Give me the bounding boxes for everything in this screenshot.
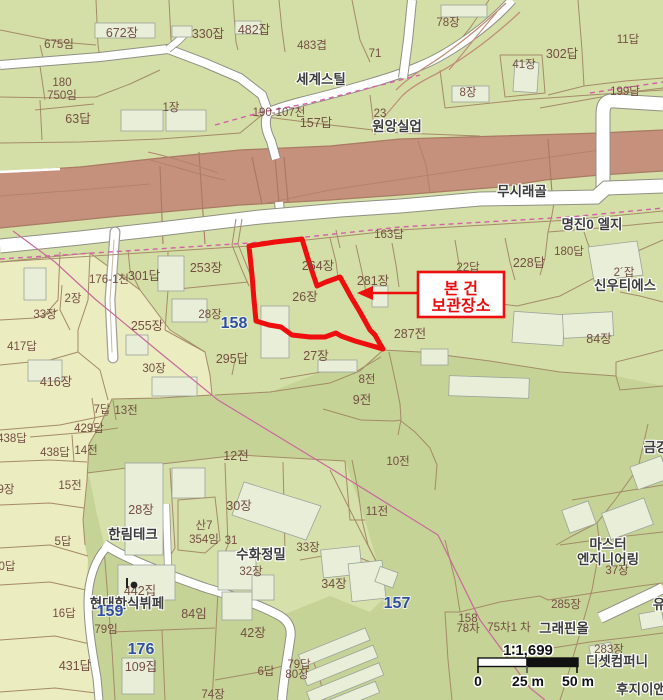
svg-text:12전: 12전 <box>223 449 248 463</box>
svg-text:438답: 438답 <box>0 432 27 445</box>
svg-text:34장: 34장 <box>321 577 347 591</box>
svg-text:30장: 30장 <box>226 499 252 513</box>
svg-text:15전: 15전 <box>58 479 81 492</box>
svg-text:28장: 28장 <box>128 503 154 517</box>
svg-text:109집: 109집 <box>125 660 157 674</box>
svg-text:8전: 8전 <box>359 373 376 386</box>
svg-text:디셋컴퍼니: 디셋컴퍼니 <box>586 653 648 669</box>
svg-text:11전: 11전 <box>366 505 389 518</box>
svg-text:354임: 354임 <box>189 533 219 546</box>
svg-text:보관장소: 보관장소 <box>432 297 491 315</box>
svg-text:176-1천: 176-1천 <box>89 272 129 286</box>
svg-text:157답: 157답 <box>300 116 333 130</box>
svg-text:253장: 253장 <box>190 261 223 275</box>
svg-text:6답: 6답 <box>258 665 275 678</box>
svg-text:27장: 27장 <box>303 349 329 363</box>
svg-text:180답: 180답 <box>554 245 584 258</box>
svg-text:무시래골: 무시래골 <box>497 184 547 199</box>
svg-text:10전: 10전 <box>386 455 409 468</box>
svg-text:26장: 26장 <box>292 290 318 304</box>
svg-text:199답: 199답 <box>610 85 640 98</box>
svg-text:28장: 28장 <box>198 308 222 321</box>
svg-text:1∶1,699: 1∶1,699 <box>503 642 553 659</box>
svg-text:750임: 750임 <box>47 89 77 102</box>
svg-text:본 건: 본 건 <box>444 280 478 298</box>
svg-text:수화정밀: 수화정밀 <box>236 546 286 562</box>
svg-text:438답: 438답 <box>40 446 70 459</box>
svg-text:416장: 416장 <box>40 375 73 389</box>
svg-text:세계스틸: 세계스틸 <box>296 72 346 87</box>
svg-text:295답: 295답 <box>216 352 249 366</box>
svg-text:255장: 255장 <box>131 319 164 333</box>
svg-text:84장: 84장 <box>586 332 612 346</box>
svg-text:672장: 672장 <box>106 26 139 40</box>
svg-text:285장: 285장 <box>551 598 581 611</box>
svg-text:417답: 417답 <box>7 340 37 353</box>
svg-text:11답: 11답 <box>617 33 640 46</box>
svg-text:산7: 산7 <box>196 519 213 532</box>
svg-text:9장: 9장 <box>0 483 15 496</box>
svg-text:7답: 7답 <box>94 403 111 416</box>
svg-text:287전: 287전 <box>394 327 426 341</box>
svg-text:9전: 9전 <box>353 393 371 407</box>
svg-text:2장: 2장 <box>65 292 82 305</box>
svg-text:301답: 301답 <box>128 269 161 283</box>
svg-text:41장: 41장 <box>512 58 536 71</box>
svg-text:675임: 675임 <box>44 38 74 51</box>
svg-text:158: 158 <box>221 315 248 332</box>
svg-text:78장: 78장 <box>436 16 460 29</box>
svg-text:431답: 431답 <box>59 659 92 673</box>
svg-text:163답: 163답 <box>374 228 404 241</box>
svg-text:74장: 74장 <box>201 688 225 700</box>
svg-text:5답: 5답 <box>55 535 72 548</box>
svg-text:31: 31 <box>225 535 238 547</box>
svg-text:190-107천: 190-107천 <box>253 105 306 119</box>
svg-text:22답: 22답 <box>456 261 480 274</box>
svg-text:180: 180 <box>52 77 71 89</box>
svg-text:금강: 금강 <box>644 439 663 455</box>
svg-text:71: 71 <box>369 48 382 60</box>
svg-text:63답: 63답 <box>65 112 91 126</box>
svg-text:482잡: 482잡 <box>238 23 271 37</box>
svg-text:33장: 33장 <box>296 541 320 554</box>
svg-text:50 m: 50 m <box>562 673 594 689</box>
svg-text:159: 159 <box>97 603 124 620</box>
svg-text:13전: 13전 <box>114 404 137 417</box>
svg-text:228답: 228답 <box>513 256 546 270</box>
svg-text:25 m: 25 m <box>512 673 544 689</box>
svg-text:신우티에스: 신우티에스 <box>594 278 657 293</box>
svg-text:429답: 429답 <box>74 422 104 435</box>
svg-text:명진0 엘지: 명진0 엘지 <box>562 216 623 232</box>
svg-text:한림테크: 한림테크 <box>108 527 158 542</box>
svg-text:176: 176 <box>128 641 155 658</box>
svg-text:마스터: 마스터 <box>589 537 626 552</box>
svg-text:32장: 32장 <box>239 565 263 578</box>
svg-text:84임: 84임 <box>181 607 206 621</box>
svg-text:79임: 79임 <box>94 623 117 636</box>
svg-text:30장: 30장 <box>142 362 166 375</box>
svg-text:78차: 78차 <box>456 622 480 635</box>
svg-text:483겹: 483겹 <box>297 39 327 52</box>
svg-text:0답: 0답 <box>0 560 16 573</box>
svg-text:14전: 14전 <box>74 444 97 457</box>
svg-text:후지이앤: 후지이앤 <box>616 681 663 697</box>
svg-text:그래핀올: 그래핀올 <box>539 620 589 636</box>
svg-text:16답: 16답 <box>52 607 76 620</box>
svg-text:330잡: 330잡 <box>192 27 225 41</box>
svg-text:0: 0 <box>474 673 482 689</box>
svg-text:157: 157 <box>384 595 411 612</box>
svg-text:75차1 차: 75차1 차 <box>487 621 531 634</box>
svg-text:42장: 42장 <box>240 626 266 640</box>
svg-text:281장: 281장 <box>357 274 390 288</box>
svg-text:1장: 1장 <box>163 101 180 114</box>
svg-text:8장: 8장 <box>460 86 477 99</box>
svg-text:원앙실업: 원앙실업 <box>372 119 422 134</box>
svg-text:264장: 264장 <box>302 259 335 273</box>
svg-text:37장: 37장 <box>605 564 629 577</box>
svg-text:80장: 80장 <box>285 668 309 681</box>
svg-text:유: 유 <box>653 597 663 612</box>
svg-text:302답: 302답 <box>546 47 579 61</box>
svg-text:33장: 33장 <box>33 308 57 321</box>
